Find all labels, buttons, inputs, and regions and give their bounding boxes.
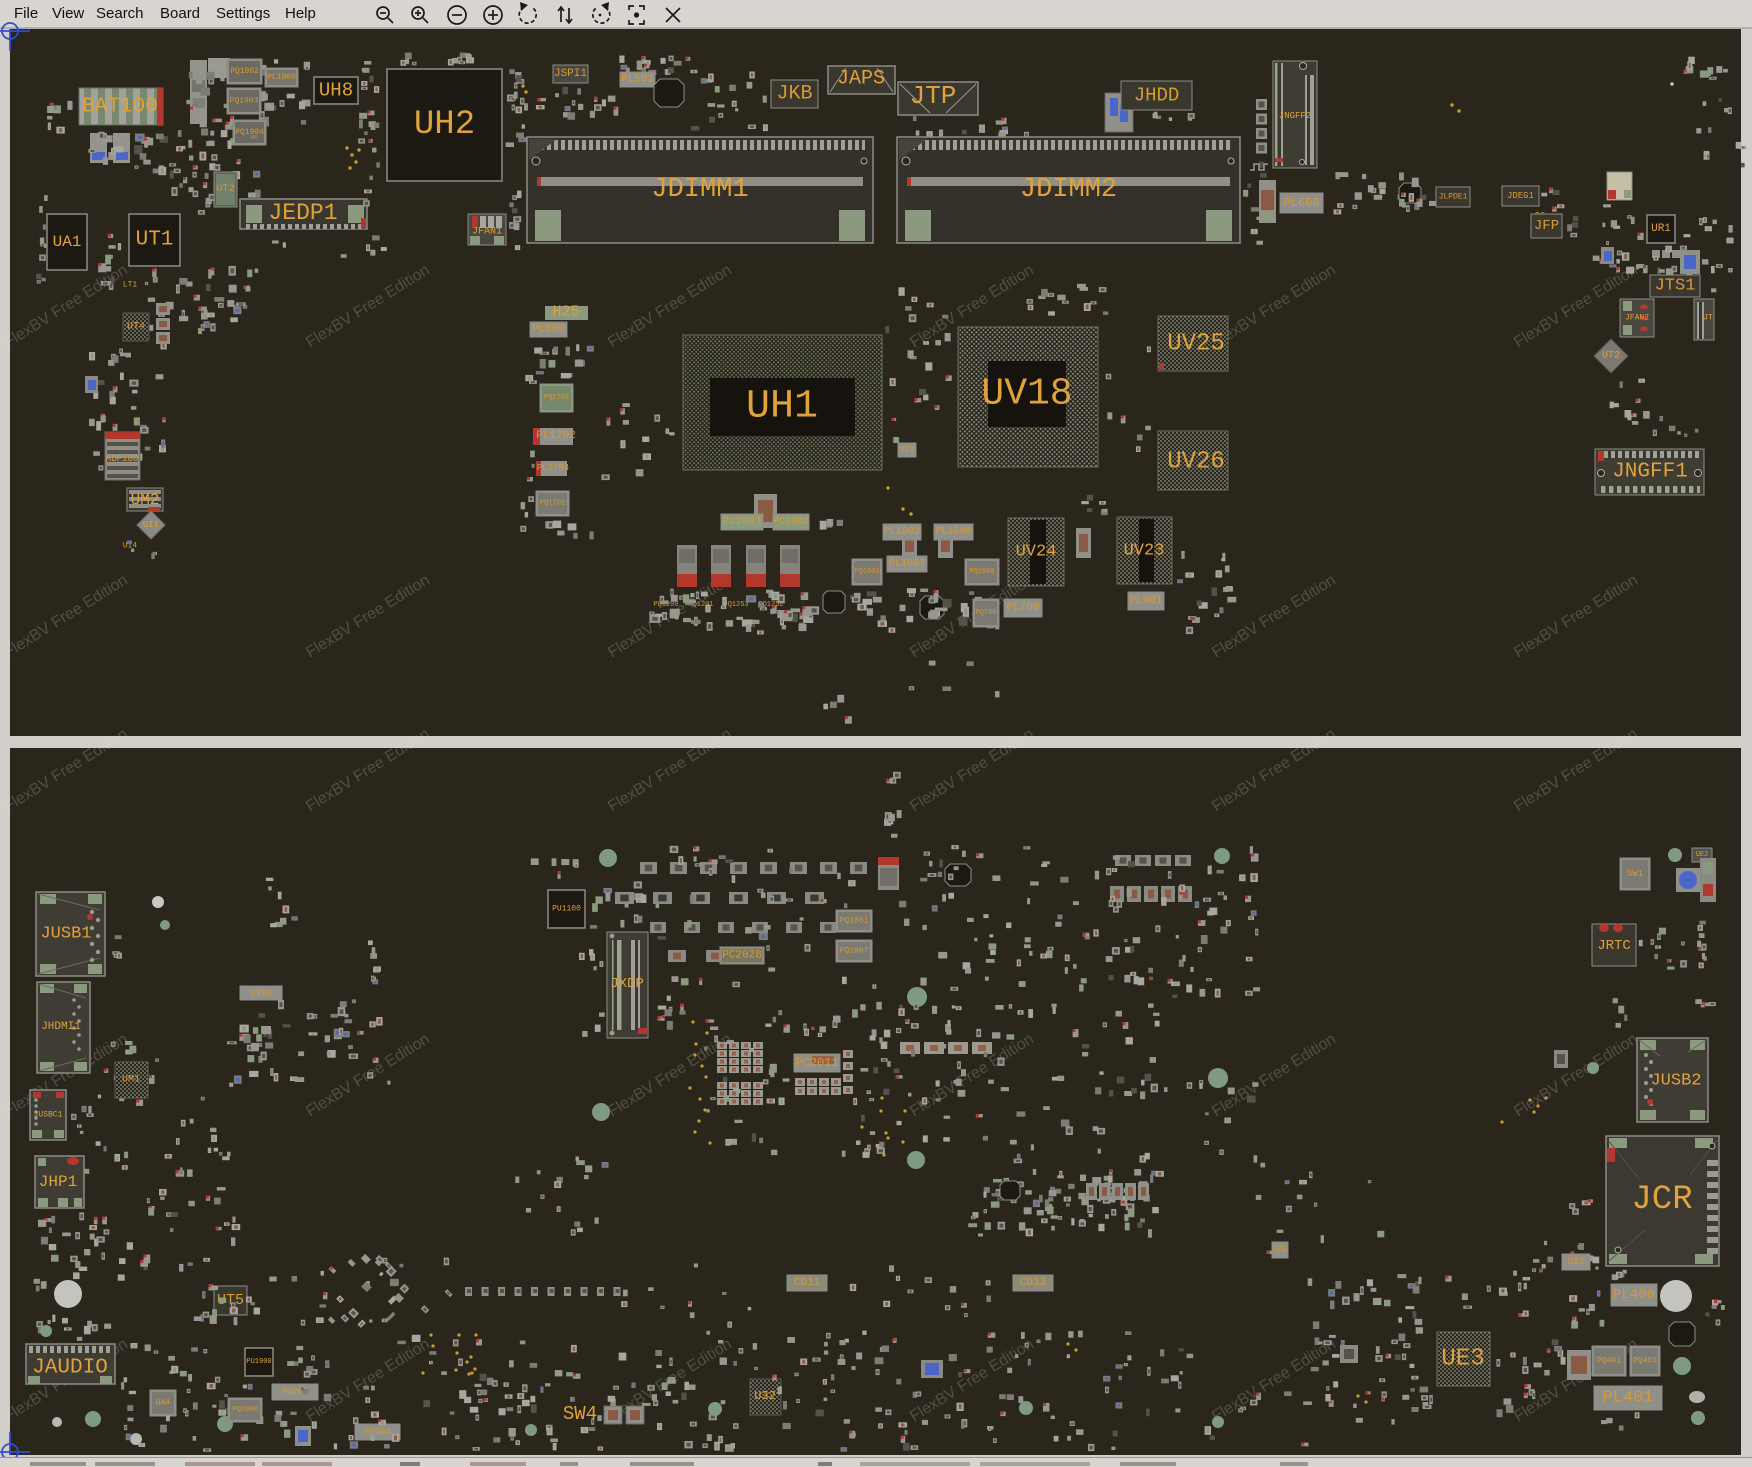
- svg-text:JEDP1: JEDP1: [268, 200, 337, 226]
- svg-text:PQ401: PQ401: [1597, 1357, 1621, 1366]
- svg-text:PL700: PL700: [1006, 602, 1039, 614]
- svg-text:JUSBC1: JUSBC1: [34, 1111, 63, 1120]
- svg-text:JNGFF2: JNGFF2: [1279, 111, 1311, 121]
- svg-text:PL1003: PL1003: [889, 559, 925, 570]
- svg-text:PU1100: PU1100: [552, 905, 581, 914]
- svg-text:PU204: PU204: [364, 1427, 391, 1437]
- svg-text:PQ1253: PQ1253: [723, 601, 748, 609]
- svg-text:PC2002: PC2002: [773, 517, 809, 528]
- svg-text:JTP: JTP: [910, 81, 957, 111]
- svg-text:JAUDIO: JAUDIO: [32, 1357, 108, 1380]
- svg-text:UA1: UA1: [53, 233, 82, 251]
- svg-text:PL400: PL400: [1613, 1287, 1655, 1303]
- svg-text:JRTC: JRTC: [1597, 938, 1631, 954]
- svg-text:JNGFF1: JNGFF1: [1612, 461, 1688, 484]
- svg-text:UT4: UT4: [127, 322, 145, 333]
- svg-text:PL501: PL501: [621, 74, 654, 86]
- svg-text:PL800: PL800: [532, 324, 565, 336]
- svg-text:UV16: UV16: [250, 988, 272, 998]
- svg-text:PL1900: PL1900: [267, 73, 296, 82]
- svg-text:PQ1002: PQ1002: [854, 568, 879, 576]
- svg-text:JDIMM1: JDIMM1: [651, 175, 748, 205]
- svg-text:UV24: UV24: [1016, 543, 1057, 562]
- svg-text:UT2: UT2: [1602, 351, 1620, 362]
- svg-text:PL1500: PL1500: [935, 527, 971, 538]
- svg-text:UV26: UV26: [1167, 449, 1225, 476]
- svg-text:JXDP: JXDP: [610, 976, 644, 992]
- svg-text:UR1: UR1: [1651, 223, 1671, 235]
- svg-text:H25: H25: [552, 304, 579, 321]
- svg-text:JFAN1: JFAN1: [472, 227, 502, 238]
- svg-text:PL600: PL600: [1283, 196, 1319, 210]
- svg-text:JSPI1: JSPI1: [554, 68, 587, 80]
- svg-text:U23: U23: [900, 446, 915, 455]
- svg-text:UV23: UV23: [1124, 542, 1165, 561]
- svg-text:JHDD: JHDD: [1134, 85, 1180, 107]
- svg-text:UV25: UV25: [1167, 331, 1225, 358]
- svg-text:PC2011: PC2011: [795, 1056, 838, 1070]
- svg-text:PQ1703: PQ1703: [544, 394, 569, 402]
- svg-text:CD33: CD33: [1020, 1277, 1046, 1289]
- svg-text:PQ1903: PQ1903: [230, 97, 259, 106]
- svg-text:PU1900: PU1900: [246, 1358, 271, 1366]
- svg-text:PC2001: PC2001: [722, 516, 762, 528]
- svg-text:PQ1500: PQ1500: [969, 568, 994, 576]
- svg-text:JTS1: JTS1: [1655, 277, 1696, 296]
- svg-text:UT1: UT1: [136, 229, 174, 252]
- svg-text:UH2: UH2: [414, 106, 475, 144]
- svg-text:PQ403: PQ403: [1633, 1357, 1657, 1366]
- svg-text:JUSB2: JUSB2: [1650, 1072, 1701, 1091]
- svg-text:UA4: UA4: [156, 1399, 171, 1408]
- svg-text:PQ1007: PQ1007: [840, 947, 869, 956]
- svg-text:JT: JT: [1703, 314, 1713, 323]
- svg-text:PQ1701: PQ1701: [540, 500, 565, 508]
- svg-text:PQ1904: PQ1904: [235, 128, 264, 137]
- svg-text:UI3: UI3: [1568, 1257, 1584, 1267]
- svg-text:JKB: JKB: [776, 83, 812, 106]
- svg-text:JFAN2: JFAN2: [1625, 314, 1649, 323]
- svg-text:JHDMI1: JHDMI1: [41, 1021, 81, 1033]
- svg-text:PL1704: PL1704: [537, 463, 569, 473]
- svg-text:PQ1902: PQ1902: [230, 67, 259, 76]
- svg-text:UV18: UV18: [981, 373, 1072, 416]
- svg-text:JLPDE1: JLPDE1: [1439, 193, 1468, 202]
- svg-text:UI1: UI1: [143, 520, 159, 530]
- svg-text:JDEG1: JDEG1: [1507, 191, 1534, 201]
- svg-text:JUSB1: JUSB1: [40, 925, 91, 944]
- svg-text:PC2028: PC2028: [722, 950, 762, 962]
- svg-text:PL401: PL401: [1602, 1389, 1653, 1408]
- svg-text:JDIMM2: JDIMM2: [1020, 175, 1117, 205]
- svg-text:U32: U32: [754, 1389, 776, 1403]
- svg-text:JAPS: JAPS: [837, 68, 885, 91]
- svg-text:PL1702: PL1702: [536, 430, 576, 442]
- svg-text:PL901: PL901: [1129, 595, 1162, 607]
- svg-text:UH1: UH1: [746, 385, 818, 430]
- svg-text:CD11: CD11: [794, 1277, 821, 1289]
- svg-text:ADP100: ADP100: [106, 454, 138, 464]
- svg-text:JCR: JCR: [1631, 1181, 1692, 1219]
- svg-text:UE2: UE2: [1696, 851, 1709, 859]
- svg-text:SW1: SW1: [1627, 869, 1643, 879]
- svg-text:UH8: UH8: [319, 80, 353, 102]
- svg-text:UZ1: UZ1: [1274, 1246, 1287, 1254]
- svg-text:LT1: LT1: [123, 281, 138, 290]
- svg-text:JFP: JFP: [1534, 218, 1559, 234]
- svg-text:PQ700: PQ700: [975, 609, 996, 617]
- svg-text:PQ1001: PQ1001: [840, 917, 869, 926]
- svg-text:UE3: UE3: [1441, 1346, 1484, 1373]
- svg-text:BAT100: BAT100: [82, 96, 158, 119]
- svg-text:JHP1: JHP1: [39, 1173, 77, 1191]
- svg-text:UT2: UT2: [216, 184, 234, 195]
- svg-text:PQ1900: PQ1900: [232, 1406, 257, 1414]
- svg-text:UM2: UM2: [131, 491, 160, 509]
- svg-text:PL1002: PL1002: [884, 527, 920, 538]
- svg-text:UM1: UM1: [122, 1075, 140, 1086]
